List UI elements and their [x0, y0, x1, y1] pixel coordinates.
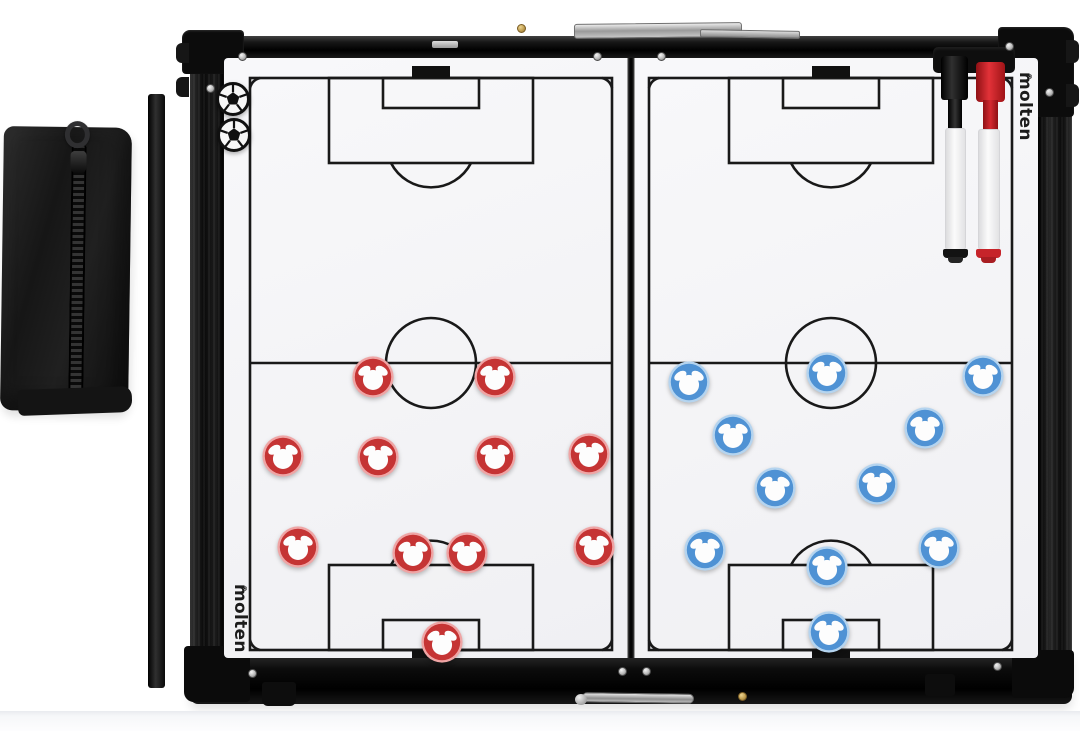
screw-rivet — [618, 667, 627, 676]
product-photo: molten® molten® — [0, 0, 1080, 731]
screw-rivet — [993, 662, 1002, 671]
table-edge — [0, 711, 1080, 731]
screw-rivet — [206, 84, 215, 93]
screw-rivet — [1045, 88, 1054, 97]
screw-rivet — [593, 52, 602, 61]
screw-rivet — [1005, 42, 1014, 51]
screw-rivet — [248, 669, 257, 678]
hardware-layer — [0, 0, 1080, 731]
gold-screw — [517, 24, 526, 33]
screw-rivet — [642, 667, 651, 676]
screw-rivet — [238, 52, 247, 61]
gold-screw — [738, 692, 747, 701]
screw-rivet — [657, 52, 666, 61]
